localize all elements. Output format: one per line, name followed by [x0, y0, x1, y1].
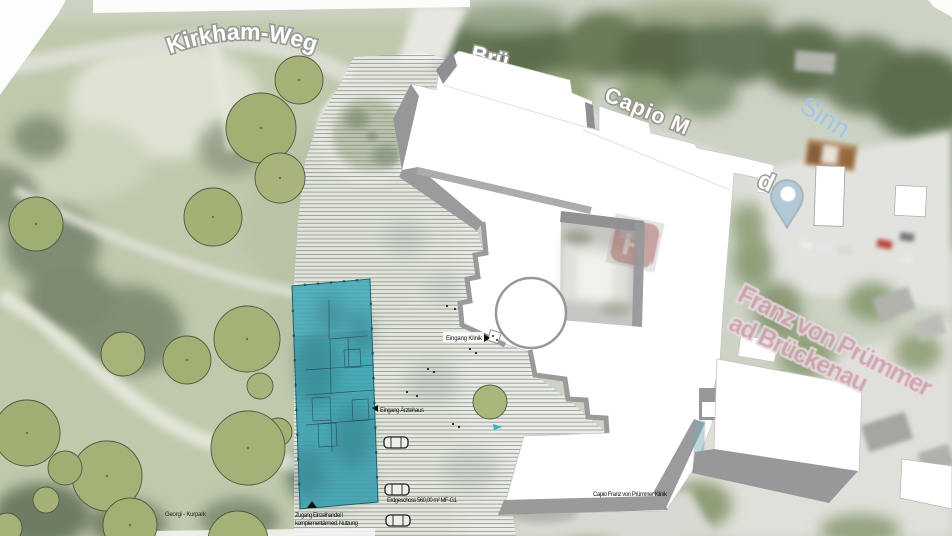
svg-text:Georgi - Kurpark: Georgi - Kurpark [165, 512, 207, 518]
svg-text:Eingang Ärztehaus: Eingang Ärztehaus [380, 407, 424, 414]
svg-text:komplementärmed. Nutzung: komplementärmed. Nutzung [295, 521, 358, 527]
svg-text:Eingang Klinik: Eingang Klinik [446, 336, 483, 342]
svg-text:Zugang Einzelhandel I: Zugang Einzelhandel I [295, 513, 343, 519]
svg-text:Erdgeschoss 560,00 m² MF-G1: Erdgeschoss 560,00 m² MF-G1 [387, 498, 458, 504]
svg-text:Capio Franz von Prümmer Klinik: Capio Franz von Prümmer Klinik [593, 492, 668, 498]
